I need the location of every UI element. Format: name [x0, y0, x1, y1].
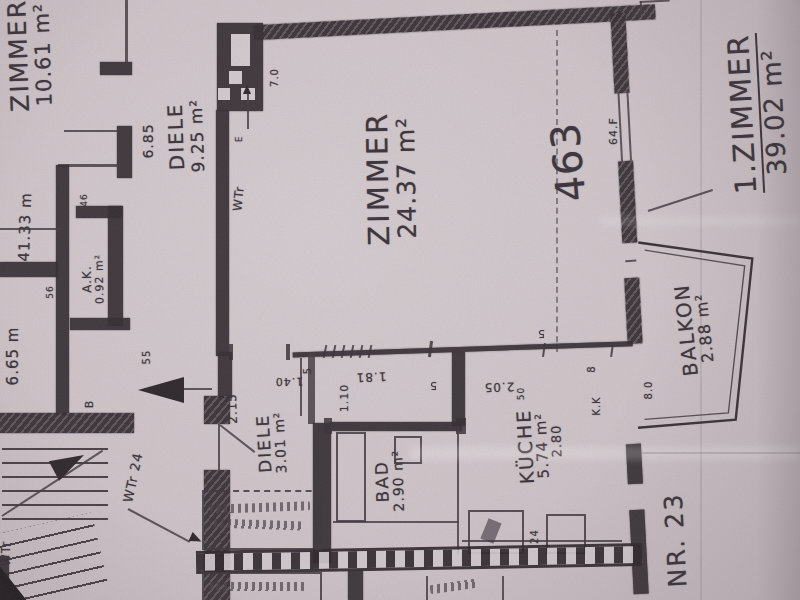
dim-55: 55 — [142, 347, 152, 367]
floor-plan-photo: ZIMMER 10.61 m² 6.85 DIELE 9.25 m² ZIMME… — [0, 0, 800, 600]
dim-181: 1.81 — [355, 369, 388, 384]
room-label-diele-lower: DIELE 3.01 m² — [248, 396, 295, 490]
dimension-tick — [323, 345, 328, 358]
bathtub — [336, 432, 366, 522]
door-line-zimmer-small — [64, 130, 118, 132]
shaft-duct-large — [231, 34, 250, 66]
entrance-arrow — [138, 377, 184, 403]
entry-door-jamb — [218, 424, 220, 470]
apartment-number: NR. 23 — [657, 479, 695, 600]
wall-below-band-blob — [348, 570, 363, 600]
wall-topleft-lower — [117, 126, 132, 178]
dimension-tick — [350, 345, 355, 358]
dim-110: 1.10 — [339, 381, 351, 415]
dim-140: 1.40 — [273, 375, 305, 388]
room-label-balkon: BALKON 2.88 m² — [662, 253, 727, 405]
room-number-463: 463 — [538, 110, 599, 214]
shaft-duct-small-a — [218, 88, 230, 100]
dim-wall-left-b: 6.65 m — [5, 310, 23, 402]
dim-5c: 5 — [534, 327, 548, 339]
wall-bad-right — [457, 425, 459, 555]
dim-80: 8.0 — [643, 373, 655, 407]
dim-diele-width: 6.85 — [140, 111, 156, 171]
dim-70: 7.0 — [270, 61, 281, 95]
room-label-ak: A.K. 0.92 m² — [77, 236, 108, 323]
dimension-tick — [341, 345, 346, 358]
dim-46: 46 — [80, 190, 90, 210]
dimension-tick — [542, 343, 546, 357]
dim-5b: 5 — [427, 379, 439, 391]
wall-ak-right — [108, 206, 123, 326]
wall-left-apartment — [56, 165, 69, 415]
dimension-tick — [368, 345, 373, 358]
wall-kueche-stub — [452, 352, 465, 426]
wall-bad-cap-left — [324, 418, 332, 434]
interior-layer: ZIMMER 10.61 m² 6.85 DIELE 9.25 m² ZIMME… — [0, 0, 800, 600]
scribble-below-band — [430, 579, 477, 594]
dim-50: 50 — [516, 381, 527, 407]
mark-e: E — [235, 133, 245, 145]
dim-8: 8 — [586, 357, 598, 381]
total-area-leader — [648, 189, 713, 212]
dimension-tick — [610, 344, 614, 357]
wall-hall-bath-thin — [308, 352, 315, 424]
wall-stair-band — [0, 413, 134, 433]
dim-wall-left-a: 41.33 m — [14, 175, 38, 280]
faint-line-right — [642, 452, 800, 454]
dim-70-arrowhead — [243, 85, 251, 94]
wall-topleft-thin — [125, 0, 128, 62]
storage-scribble-c — [210, 582, 305, 591]
shaft-duct-mid — [229, 71, 242, 84]
door-cap-b — [286, 344, 290, 360]
dim-280: 2.80 — [549, 413, 565, 469]
entrance-arrow-line — [184, 388, 212, 390]
kitchen-duct-mark: K.K — [591, 386, 603, 426]
dim-70-line — [247, 93, 249, 129]
line-below-band-b — [502, 576, 504, 600]
dimension-tick — [359, 345, 364, 358]
room-label-zimmer-small: ZIMMER 10.61 m² — [0, 0, 62, 131]
door-mark-b: B — [84, 397, 96, 411]
total-area-label: 1.ZIMMER 39.02 m² — [720, 13, 796, 212]
dim-24: 24 — [530, 525, 541, 549]
dimension-tick — [428, 341, 433, 357]
dim-215: 2.15 — [226, 390, 240, 426]
stair-mark-wtr24: WTr 24 — [117, 435, 149, 520]
wall-topleft-cap — [100, 62, 132, 75]
stair-edge-mark-wtr: WTr — [0, 524, 13, 584]
shaft-mark-wtr: WTr — [230, 177, 247, 220]
room-label-bad: BAD 2.90 m² — [367, 434, 410, 527]
room-label-zimmer-main: ZIMMER 24.37 m² — [354, 87, 429, 268]
wall-diele-zimmer — [216, 110, 229, 356]
wtr-leader-line — [128, 508, 191, 543]
room-label-diele-upper: DIELE 9.25 m² — [160, 79, 212, 193]
line-below-band-a — [426, 576, 428, 600]
dim-56: 56 — [46, 282, 56, 302]
dimension-tick — [332, 345, 337, 358]
wall-bad-top — [330, 422, 462, 431]
window-mark: 64.F — [607, 98, 621, 164]
